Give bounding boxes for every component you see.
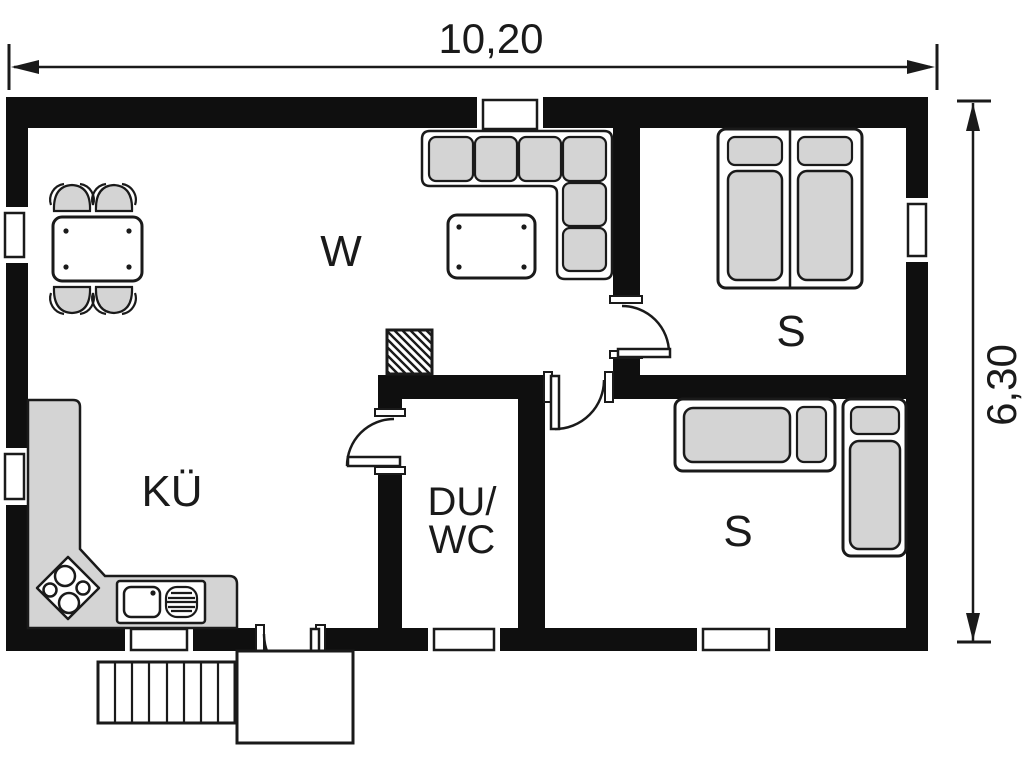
hatched-stove: [387, 330, 432, 374]
floor-plan-page: W KÜ DU/ WC S S 10,20 6,30: [0, 0, 1024, 768]
sofa-cushion: [563, 137, 606, 181]
fireplace-stove: [387, 330, 432, 374]
door-jamb: [375, 409, 405, 416]
door-bedroom-upper: [610, 296, 670, 358]
sofa-cushion: [475, 137, 517, 181]
chair: [96, 185, 132, 211]
entrance-porch: [237, 651, 353, 743]
window-pane: [703, 629, 769, 650]
window-bottom-bath: [428, 625, 500, 653]
floor-plan-drawing: W KÜ DU/ WC S S 10,20 6,30: [0, 0, 1024, 768]
sofa-cushion: [519, 137, 561, 181]
kitchen-counter: [28, 400, 237, 628]
chair: [54, 185, 90, 211]
dining-set: [50, 184, 142, 314]
wall-mid-horizontal-left: [378, 375, 545, 399]
door-jamb: [605, 372, 613, 402]
mattress: [684, 408, 790, 462]
pillow: [728, 137, 782, 165]
arrow-right: [907, 60, 935, 74]
door-bath: [347, 409, 405, 474]
door-leaf: [348, 457, 400, 466]
mattress: [728, 171, 782, 280]
porch-platform: [237, 651, 353, 743]
sofa-cushion: [563, 228, 606, 271]
window-left-upper: [2, 207, 31, 263]
arrow-down: [966, 613, 980, 641]
pillow: [797, 407, 826, 462]
wall-top: [6, 97, 928, 128]
sofa-cushion: [429, 137, 473, 181]
window-pane: [908, 204, 926, 256]
window-pane: [434, 629, 494, 650]
sofa-cushion: [563, 183, 606, 226]
window-pane: [5, 454, 24, 499]
wall-left: [6, 97, 28, 651]
window-pane: [483, 100, 537, 129]
single-bed-horizontal: [675, 399, 835, 471]
window-top: [477, 94, 543, 131]
dimension-height-label: 6,30: [978, 344, 1024, 426]
double-bed: [718, 129, 862, 288]
burner: [59, 593, 79, 613]
chair: [54, 287, 90, 313]
door-jamb: [610, 296, 642, 303]
stairs: [98, 662, 235, 723]
door-leaf: [551, 376, 559, 429]
pillow: [851, 407, 899, 434]
arrow-up: [966, 103, 980, 131]
dimension-width: 10,20: [9, 15, 937, 90]
room-label-bedroom-lower: S: [723, 507, 752, 556]
room-label-living: W: [320, 227, 362, 276]
burner: [55, 566, 75, 586]
burner: [44, 584, 57, 597]
dimension-height: 6,30: [957, 101, 1024, 642]
window-right: [903, 198, 930, 262]
mattress: [798, 171, 852, 280]
door-bedroom-lower: [544, 372, 613, 429]
sink-unit: [117, 581, 205, 623]
room-label-bedroom-upper: S: [776, 307, 805, 356]
arrow-left: [11, 60, 39, 74]
wall-right: [906, 97, 928, 651]
mattress: [850, 441, 900, 549]
faucet: [150, 590, 155, 595]
door-leaf: [618, 349, 670, 357]
window-pane: [5, 213, 24, 257]
single-bed-vertical: [843, 399, 906, 556]
wall-mid-horizontal-right: [613, 375, 906, 399]
coffee-table: [448, 215, 535, 278]
dining-table: [53, 217, 142, 281]
dimension-width-label: 10,20: [438, 15, 543, 62]
burner: [77, 582, 90, 595]
room-label-bath-line2: WC: [429, 518, 496, 562]
pillow: [798, 137, 852, 165]
chair: [96, 287, 132, 313]
window-left-lower: [2, 448, 31, 505]
room-label-kitchen: KÜ: [141, 467, 202, 516]
door-jamb: [375, 467, 405, 474]
window-pane: [131, 629, 187, 650]
wall-bath-right: [518, 399, 545, 628]
window-bottom-bedroom: [697, 625, 775, 653]
